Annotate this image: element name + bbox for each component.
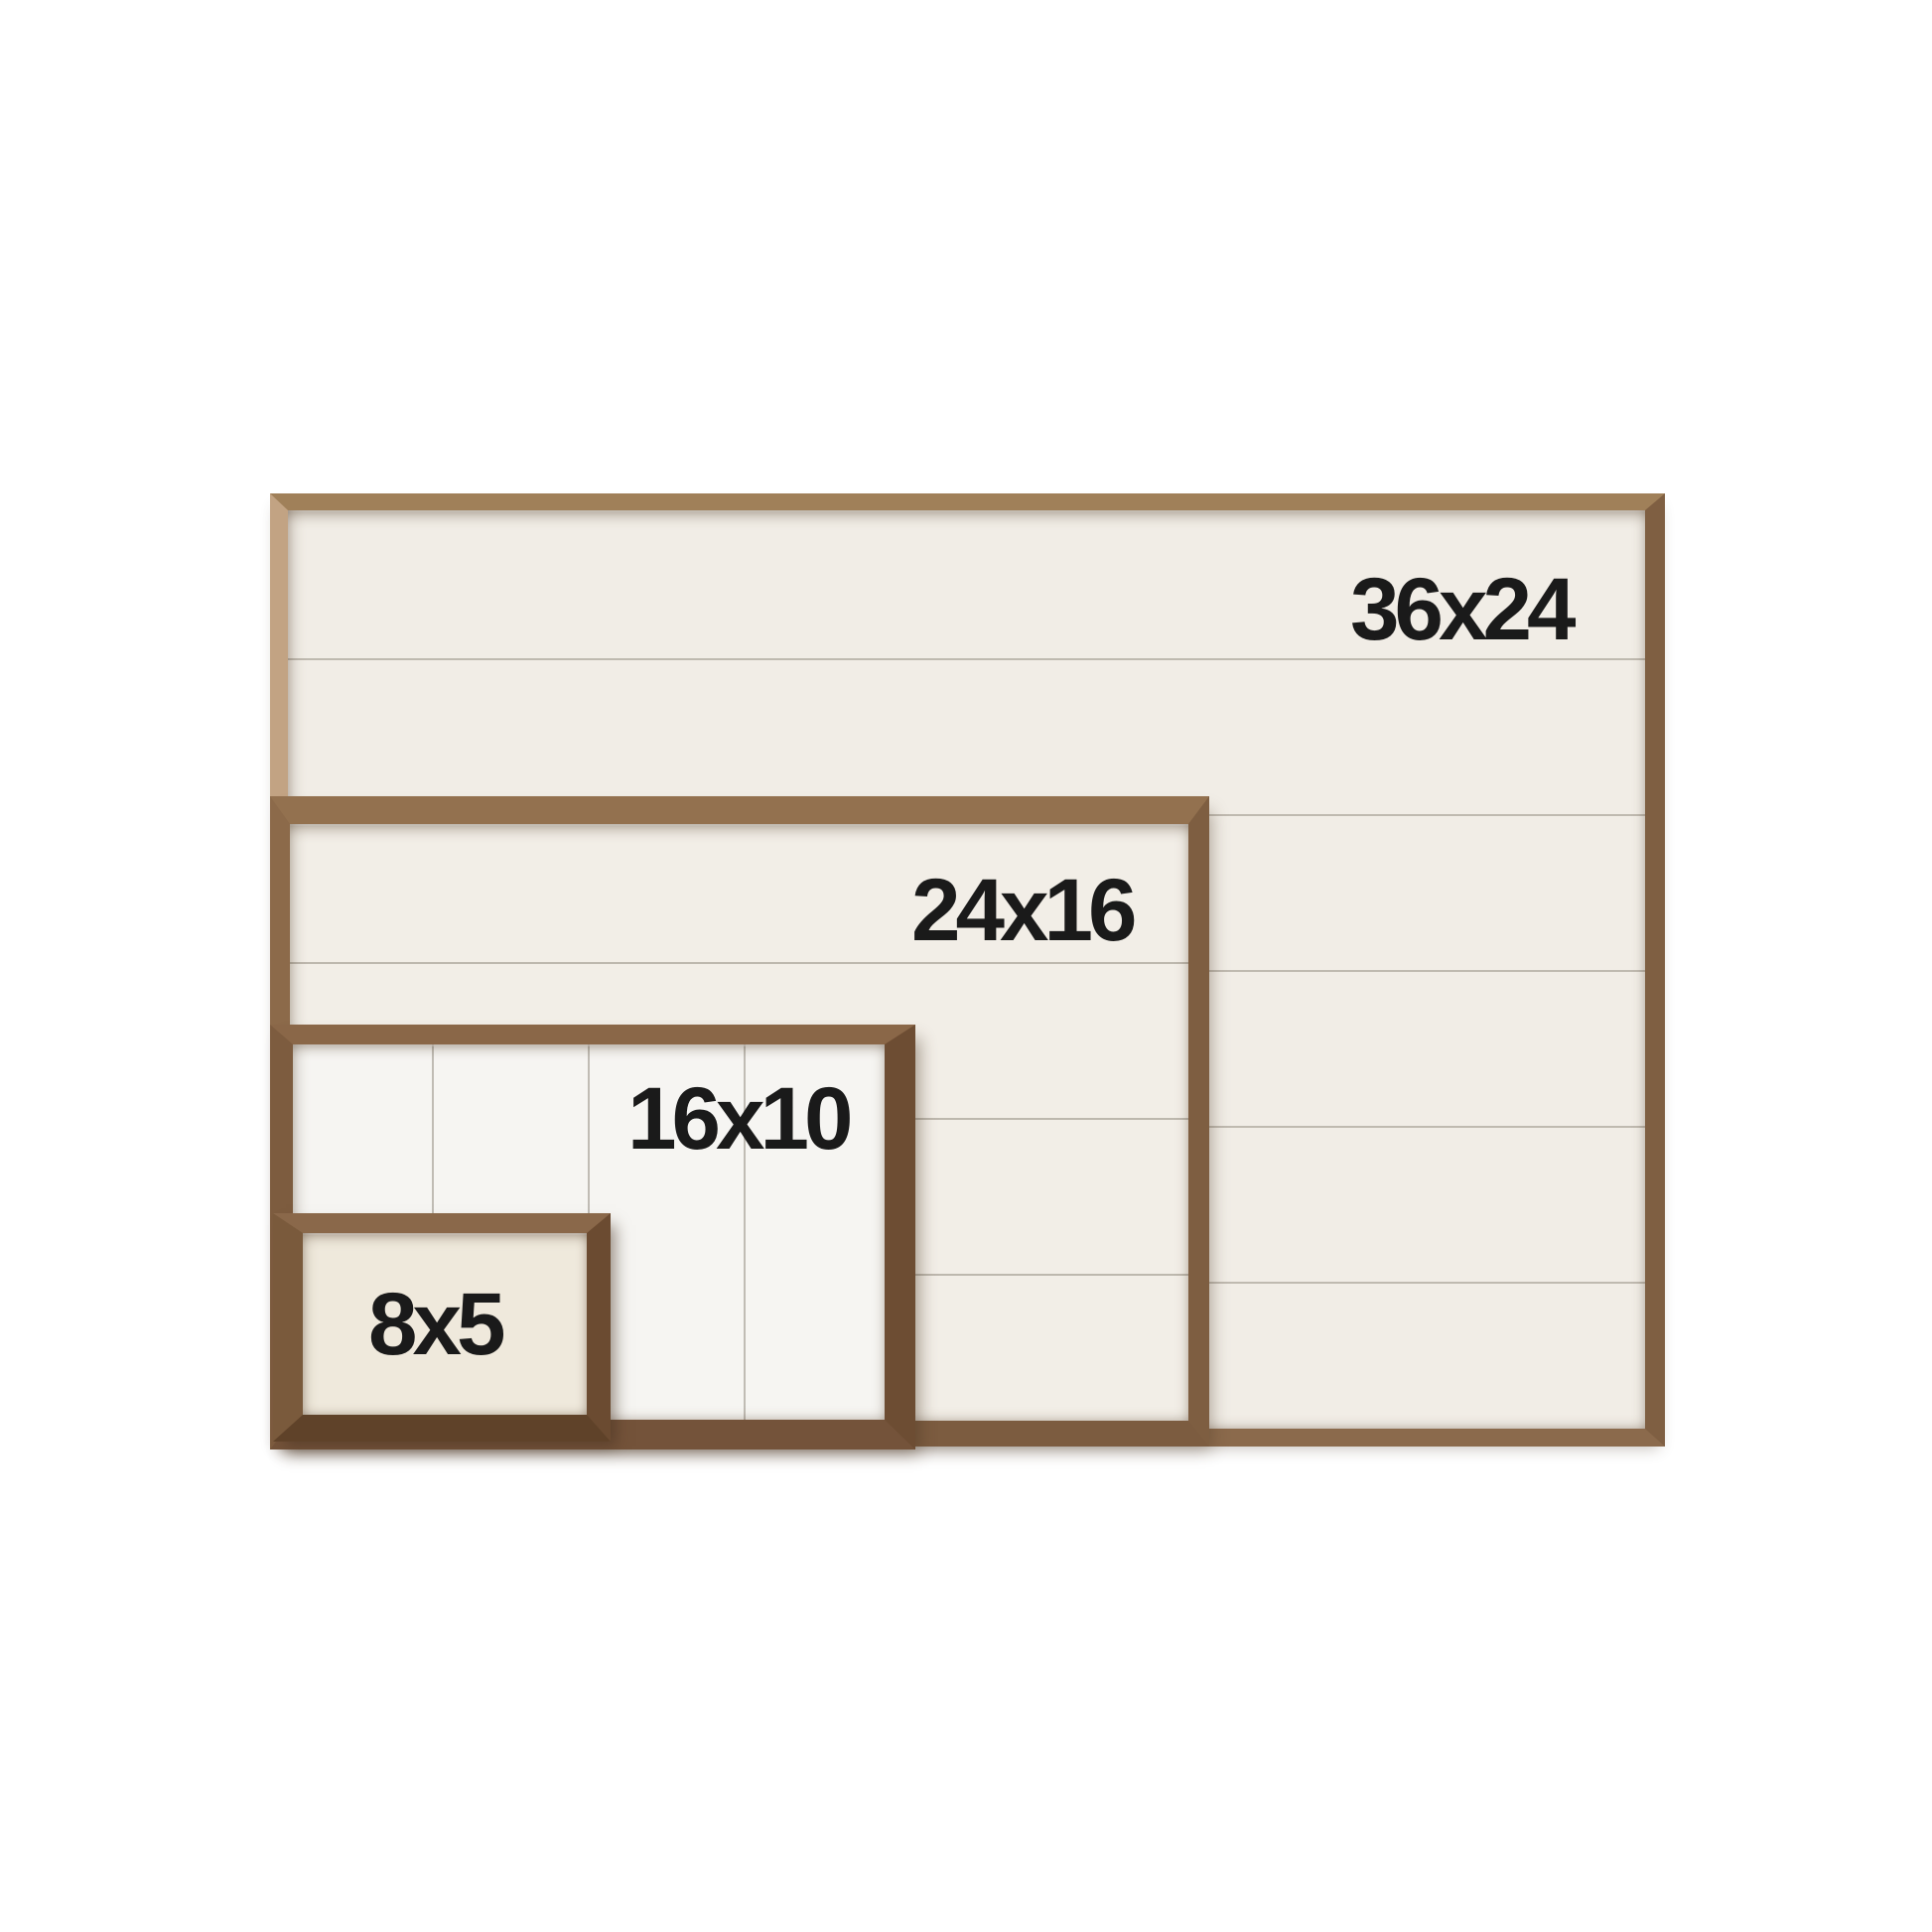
size-label-16x10: 16x10 — [627, 1074, 849, 1163]
size-label-36x24: 36x24 — [1350, 565, 1572, 653]
frame-8x5: 8x5 — [273, 1213, 611, 1442]
size-label-8x5: 8x5 — [368, 1280, 501, 1368]
product-size-chart: 36x24 24x16 16x10 8x5 — [0, 0, 1932, 1932]
size-label-24x16: 24x16 — [911, 866, 1133, 954]
